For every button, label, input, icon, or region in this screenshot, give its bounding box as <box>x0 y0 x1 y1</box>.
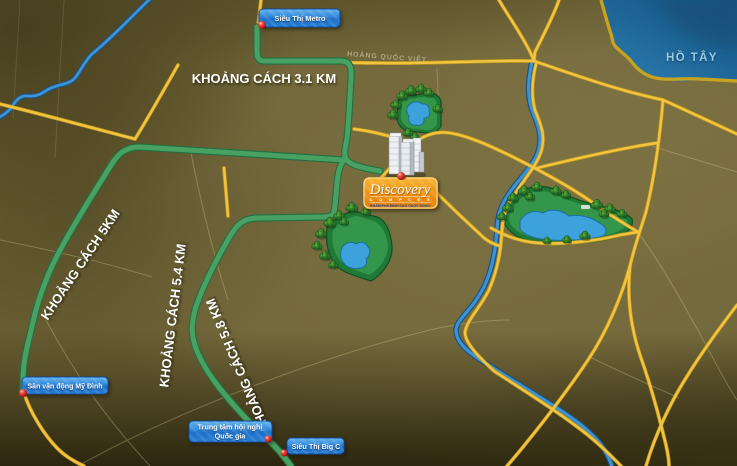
svg-text:Trung tâm hội nghị: Trung tâm hội nghị <box>198 423 263 432</box>
svg-text:Discovery: Discovery <box>369 182 431 198</box>
svg-text:Siêu Thị Metro: Siêu Thị Metro <box>275 14 326 23</box>
svg-text:Quốc gia: Quốc gia <box>215 432 247 441</box>
svg-text:Sân vận động Mỹ Đình: Sân vận động Mỹ Đình <box>27 384 102 391</box>
svg-text:Siêu Thị Big C: Siêu Thị Big C <box>292 442 341 451</box>
svg-text:KHOẢNG CÁCH 3.1 KM: KHOẢNG CÁCH 3.1 KM <box>192 71 336 86</box>
svg-text:KHÁM PHÁ ĐỈNH CAO CUỘC SỐNG: KHÁM PHÁ ĐỈNH CAO CUỘC SỐNG <box>370 203 430 208</box>
svg-text:C O M P L E X: C O M P L E X <box>370 198 433 202</box>
svg-text:HỒ TÂY: HỒ TÂY <box>666 51 718 64</box>
